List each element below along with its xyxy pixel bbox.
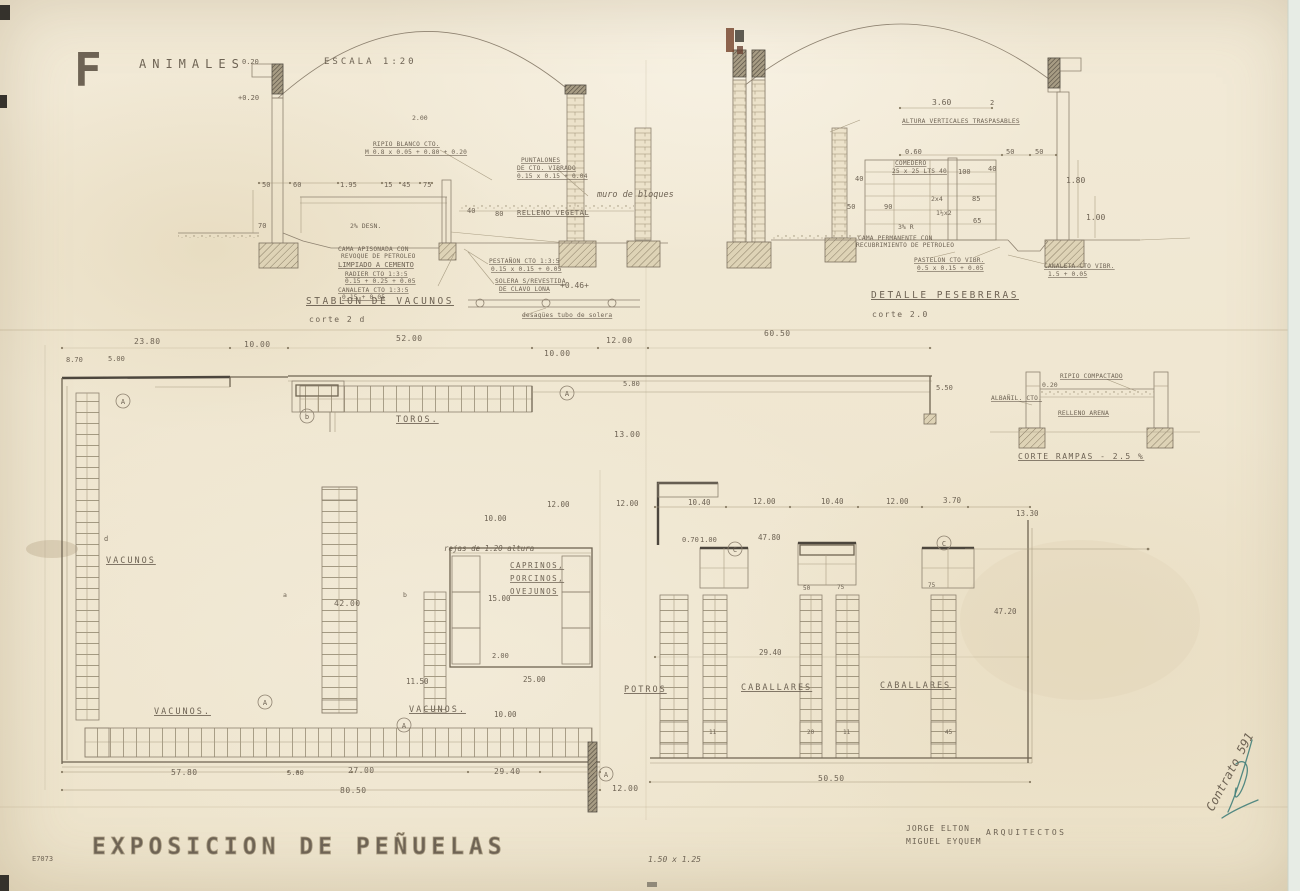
dim-label: 15 — [384, 181, 392, 189]
note: RADIER CTO 1:3:5 — [345, 271, 408, 278]
note: LIMPIADO A CEMENTO — [338, 261, 414, 269]
section-stablon-vacunos — [178, 31, 668, 316]
note: RECUBRIMIENTO DE PETROLEO — [856, 242, 954, 249]
dim-label: 50 — [847, 203, 855, 211]
dim-label: 80 — [495, 210, 503, 218]
dim-label: 57.80 — [171, 768, 198, 777]
dim-label: 75 — [928, 582, 936, 589]
ref-bubble-label: C — [733, 546, 737, 554]
note: REVOQUE DE PETROLEO — [341, 253, 416, 260]
dim-label: 5.50 — [936, 384, 953, 392]
dim-label: a — [283, 591, 287, 599]
section-title-vacunos: STABLON DE VACUNOS — [306, 296, 454, 307]
dim-label: 2% DESN. — [350, 222, 381, 230]
dim-label: 60 — [293, 181, 301, 189]
drawing-title: ANIMALES — [139, 57, 245, 71]
dim-label: 20 — [807, 729, 815, 736]
sheet-letter: F — [74, 43, 102, 97]
note: RELLENO ARENA — [1058, 410, 1109, 417]
ref-bubble-label: A — [604, 771, 609, 779]
vault-arc — [744, 24, 1058, 86]
plan-label-porcinos: PORCINOS, — [510, 574, 564, 583]
footing — [727, 242, 771, 268]
dim-label: b — [403, 591, 407, 599]
dim-label: 10.40 — [688, 498, 711, 507]
dim-label: 2x4 — [931, 195, 943, 203]
note: 0.15 x 0.15 + 0.04 — [517, 173, 588, 180]
dim-label: 3% R — [898, 223, 914, 231]
dim-label: 13.00 — [614, 430, 641, 439]
plan-label-caballares-1: CABALLARES — [741, 683, 812, 693]
note: CAMA PERMANENTE CON — [858, 235, 933, 242]
ref-bubble-label: C — [942, 540, 946, 548]
note: CANALETA CTO 1:3:5 — [338, 287, 409, 294]
dim-label: 50 — [803, 585, 811, 592]
dim-label: 45 — [402, 181, 410, 189]
dim-label: 2.00 — [492, 652, 509, 660]
drawing-sheet: FANIMALESESCALA 1:200.20+0.202.00RIPIO B… — [0, 0, 1300, 891]
dim-label: 47.80 — [758, 533, 781, 542]
dim-label: 11.50 — [406, 677, 429, 686]
dim-label: 0.70 — [682, 536, 699, 544]
architect-name-1: JORGE ELTON — [906, 824, 970, 833]
dim-label: 0.60 — [905, 148, 922, 156]
dim-label: 8.70 — [66, 356, 83, 364]
dim-label: 1.00 — [1086, 213, 1105, 222]
dim-label: 40 — [467, 207, 475, 215]
note-hand: muro de bloques — [596, 190, 674, 200]
dim-label: 50.50 — [818, 774, 845, 783]
plan-label-vacunos-south-1: VACUNOS. — [154, 707, 211, 717]
note: 0.15 + 0.25 + 0.05 — [345, 278, 416, 285]
dim-label: d — [104, 535, 108, 543]
plan-label-vacunos-west: VACUNOS — [106, 556, 156, 566]
ref-bubble-label: A — [565, 390, 570, 398]
dim-label: 1½x2 — [936, 209, 952, 217]
architects-role: ARQUITECTOS — [986, 828, 1066, 837]
note: SOLERA S/REVESTIDA — [495, 278, 566, 285]
dim-label: 10.00 — [544, 349, 571, 358]
note: 0.5 x 0.15 + 0.05 — [917, 265, 984, 272]
scanner-edge — [1288, 0, 1300, 891]
dim-label: 12.00 — [616, 499, 639, 508]
dim-label: 11 — [843, 729, 851, 736]
dim-label: 1.80 — [1066, 176, 1085, 185]
dim-label: 47.20 — [994, 607, 1017, 616]
dim-label: 60.50 — [764, 329, 791, 338]
note: DE CLAVO LONA — [499, 286, 550, 293]
dim-label: 50 — [1035, 148, 1043, 156]
dim-label: 50 — [262, 181, 270, 189]
scale-note: ESCALA 1:20 — [324, 57, 417, 67]
project-title: EXPOSICION DE PEÑUELAS — [92, 832, 507, 860]
section-cut-vacunos: corte 2 d — [309, 315, 366, 324]
dim-label: 5.00 — [108, 355, 125, 363]
dim-label: 12.00 — [612, 784, 639, 793]
note: RIPIO COMPACTADO — [1060, 373, 1123, 380]
dim-label: 12.00 — [606, 336, 633, 345]
dim-label: 10.00 — [494, 710, 517, 719]
dim-label: 85 — [972, 195, 980, 203]
dim-label: 27.00 — [348, 766, 375, 775]
note: 25 x 25 LTS 40 — [892, 168, 947, 175]
note: CANALETA CTO VIBR. — [1044, 263, 1115, 270]
stall-row — [931, 595, 956, 758]
dim-label: 70 — [258, 222, 266, 230]
dim-label: +0.20 — [238, 94, 259, 102]
note: M 0.8 x 0.05 + 0.80 + 0.20 — [365, 149, 467, 156]
note: 1.5 + 0.05 — [1048, 271, 1087, 278]
plan-toros — [61, 347, 936, 432]
note: COMEDERO — [895, 160, 926, 167]
dim-label: 13.30 — [1016, 509, 1039, 518]
dim-label: 90 — [884, 203, 892, 211]
dim-label: 29.40 — [494, 767, 521, 776]
dim-label: 42.00 — [334, 599, 361, 608]
dim-label: 40 — [988, 165, 996, 173]
note: ALTURA VERTICALES TRASPASABLES — [902, 118, 1020, 125]
dim-label: 2.00 — [412, 114, 428, 122]
note: DE CTO. VIBRADO — [517, 165, 576, 172]
dim-label: 3.60 — [932, 98, 951, 107]
ref-bubble-label: A — [263, 699, 268, 707]
dim-label: 11 — [709, 729, 717, 736]
dim-label: 10.00 — [484, 514, 507, 523]
dim-label: 100 — [958, 168, 971, 176]
section-detalle-pesebreras — [727, 24, 1190, 268]
dim-label: 0.20 — [242, 58, 259, 66]
dim-label: 3.70 — [943, 496, 962, 505]
footing — [259, 243, 298, 268]
dim-label: 80.50 — [340, 786, 367, 795]
note: desagües tubo de solera — [522, 312, 612, 319]
note-hand: rejas de 1.20 altura — [444, 544, 534, 553]
note: RIPIO BLANCO CTO. — [373, 141, 440, 148]
archive-mark: E7073 — [32, 855, 53, 863]
contract-note: Contrato 591 — [1203, 730, 1256, 813]
note: PUNTALONES — [521, 157, 560, 164]
note: PESTAÑON CTO 1:3:5 — [489, 256, 560, 265]
dim-label: 1.00 — [700, 536, 717, 544]
plan-label-toros: TOROS. — [396, 415, 439, 425]
dim-label: 12.00 — [886, 497, 909, 506]
dim-label: 5.60 — [287, 769, 304, 777]
plan-label-ovejunos: OVEJUNOS — [510, 587, 558, 596]
dim-label: 1.95 — [340, 181, 357, 189]
note: PASTELON CTO VIBR. — [914, 257, 985, 264]
dim-label: 15.00 — [488, 594, 511, 603]
detail-title-rampas: CORTE RAMPAS - 2.5 % — [1018, 452, 1144, 461]
note: RELLENO VEGETAL — [517, 209, 589, 217]
plan-label-vacunos-south-2: VACUNOS. — [409, 705, 466, 715]
sheet-size-note: 1.50 x 1.25 — [648, 855, 701, 864]
dim-label: 29.40 — [759, 648, 782, 657]
dim-label: 23.80 — [134, 337, 161, 346]
architectural-drawing: FANIMALESESCALA 1:200.20+0.202.00RIPIO B… — [0, 0, 1300, 891]
dim-label: 52.00 — [396, 334, 423, 343]
dim-label: 0.20 — [1042, 381, 1058, 389]
dim-label: 10.40 — [821, 497, 844, 506]
vault-arc — [278, 31, 571, 98]
dim-label: 5.80 — [623, 380, 640, 388]
plan-label-caballares-2: CABALLARES — [880, 681, 951, 691]
section-cut-pesebreras: corte 2.0 — [872, 310, 929, 319]
stall-row — [85, 728, 592, 757]
dim-label: 2 — [990, 99, 994, 107]
dim-label: 65 — [973, 217, 981, 225]
dim-label: 12.00 — [547, 500, 570, 509]
section-title-pesebreras: DETALLE PESEBRERAS — [871, 290, 1019, 301]
dim-label: 25.00 — [523, 675, 546, 684]
plan-label-potros: POTROS — [624, 685, 667, 695]
ref-bubble-label: b — [305, 413, 309, 421]
note: 0.15 x 0.15 + 0.05 — [491, 266, 562, 273]
dim-label: 10.00 — [244, 340, 271, 349]
ref-bubble-label: A — [121, 398, 126, 406]
note: ALBAÑIL. CTO. — [991, 393, 1042, 402]
stall-row — [76, 393, 99, 720]
dim-label: 50 — [1006, 148, 1014, 156]
dim-label: 40 — [855, 175, 863, 183]
edge-marks — [0, 5, 744, 891]
plan-label-caprinos: CAPRINOS, — [510, 561, 564, 570]
note: CAMA APISONADA CON — [338, 246, 409, 253]
dim-label: 45 — [945, 729, 953, 736]
architect-name-2: MIGUEL EYQUEM — [906, 837, 982, 846]
dim-label: 12.00 — [753, 497, 776, 506]
dim-label: 75 — [423, 181, 431, 189]
dim-label: 75 — [837, 584, 845, 591]
level-mark: +0.46+ — [560, 281, 589, 290]
